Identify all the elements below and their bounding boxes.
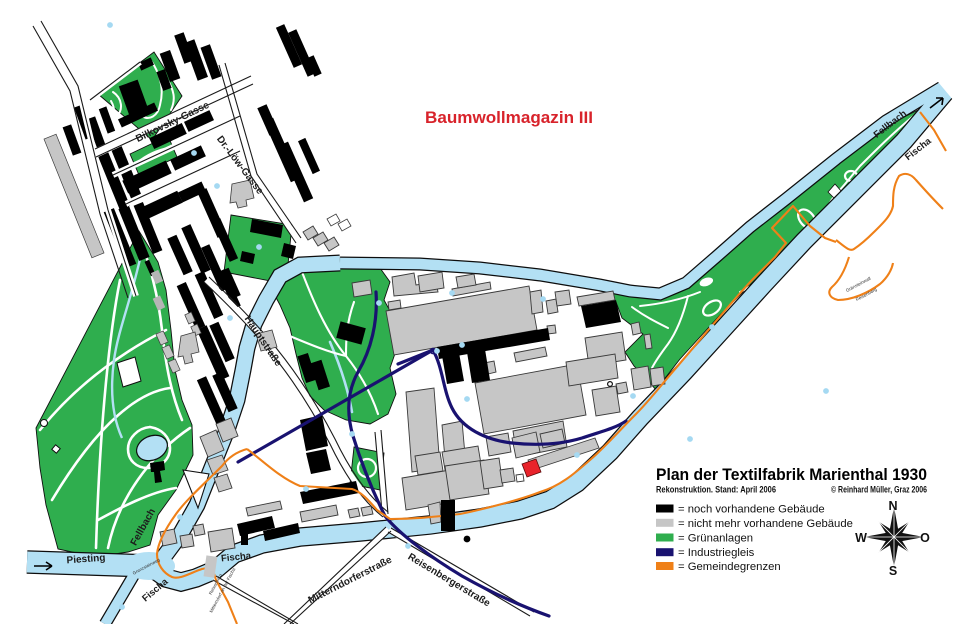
svg-text:Rekonstruktion. Stand: April 2: Rekonstruktion. Stand: April 2006 — [656, 485, 776, 496]
svg-text:Baumwollmagazin III: Baumwollmagazin III — [425, 108, 593, 127]
svg-text:O: O — [920, 531, 930, 545]
svg-text:© Reinhard Müller, Graz 2006: © Reinhard Müller, Graz 2006 — [831, 485, 927, 496]
svg-text:= noch vorhandene Gebäude: = noch vorhandene Gebäude — [678, 504, 825, 516]
svg-text:W: W — [855, 531, 867, 545]
svg-text:Plan der Textilfabrik Marienth: Plan der Textilfabrik Marienthal 1930 — [656, 466, 927, 484]
svg-text:= Grünanlagen: = Grünanlagen — [678, 533, 753, 545]
svg-text:N: N — [888, 499, 897, 513]
svg-text:= Industriegleis: = Industriegleis — [678, 547, 755, 559]
svg-text:S: S — [889, 564, 897, 578]
svg-text:= Gemeindegrenzen: = Gemeindegrenzen — [678, 561, 781, 573]
svg-text:= nicht mehr vorhandene Gebäud: = nicht mehr vorhandene Gebäude — [678, 518, 853, 530]
